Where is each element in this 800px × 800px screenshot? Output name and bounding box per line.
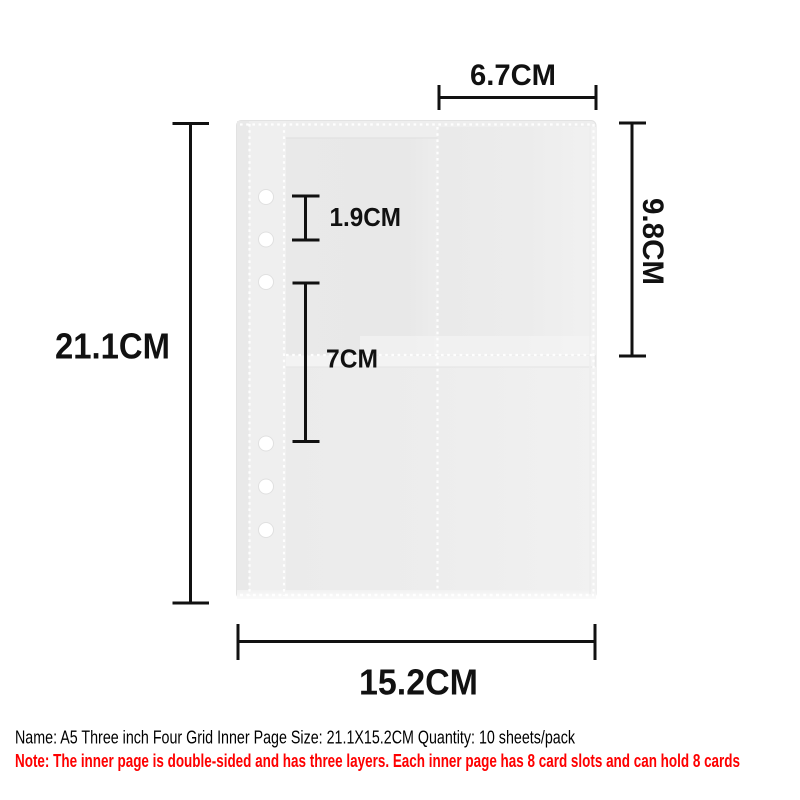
svg-text:Note: The inner page is double: Note: The inner page is double-sided and… bbox=[15, 751, 740, 771]
svg-text:6.7CM: 6.7CM bbox=[470, 59, 556, 92]
svg-text:1.9CM: 1.9CM bbox=[330, 202, 402, 232]
svg-text:21.1CM: 21.1CM bbox=[55, 326, 170, 367]
svg-text:Name: A5 Three inch Four Grid: Name: A5 Three inch Four Grid Inner Page… bbox=[15, 728, 576, 748]
svg-text:15.2CM: 15.2CM bbox=[359, 662, 478, 703]
svg-text:9.8CM: 9.8CM bbox=[636, 198, 669, 285]
svg-text:7CM: 7CM bbox=[326, 344, 378, 374]
